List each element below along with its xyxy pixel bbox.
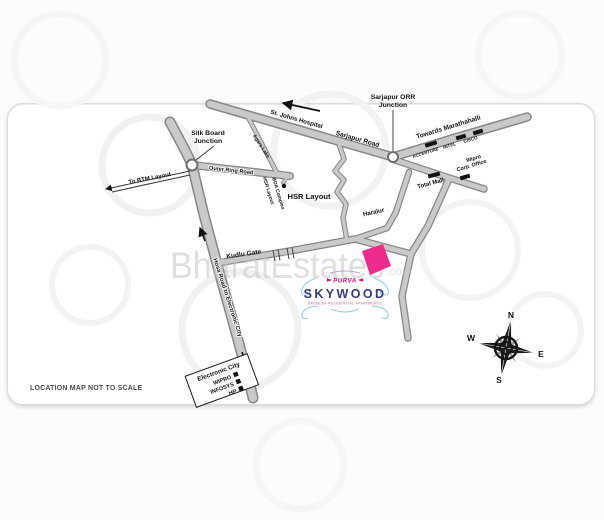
compass-e: E xyxy=(538,349,544,359)
road-sarjapur xyxy=(210,104,393,157)
electronic-city-box: Electronic City WIPRO INFOSYS HP xyxy=(185,354,259,409)
orr-junction-label-1: Sarjapur ORR xyxy=(371,94,416,101)
orr-junction-circle xyxy=(388,152,398,162)
compass-n: N xyxy=(508,310,514,320)
silk-board-label-2: Junction xyxy=(194,138,222,145)
location-map: BharatEstates .com Silk Board Junction S… xyxy=(0,0,604,520)
orr-junction-label-2: Junction xyxy=(379,102,407,109)
compass-w: W xyxy=(467,333,476,343)
compass-rose: N E S W xyxy=(467,310,544,385)
project-logo: PURVA SKYWOOD PREMIUM RESIDENTIAL APARTM… xyxy=(302,271,389,319)
logo-name: SKYWOOD xyxy=(304,287,387,301)
footer-note: LOCATION MAP NOT TO SCALE xyxy=(30,385,142,392)
logo-brand: PURVA xyxy=(333,279,357,285)
silk-board-junction-circle xyxy=(187,160,198,171)
haralur-label: Haralur xyxy=(362,207,385,219)
silk-board-label-1: Silk Board xyxy=(191,130,225,137)
logo-tagline: PREMIUM RESIDENTIAL APARTMENTS xyxy=(308,302,382,306)
hsr-layout-label: HSR Layout xyxy=(287,192,331,201)
bda-complex-dot xyxy=(282,184,286,188)
compass-s: S xyxy=(496,375,502,385)
